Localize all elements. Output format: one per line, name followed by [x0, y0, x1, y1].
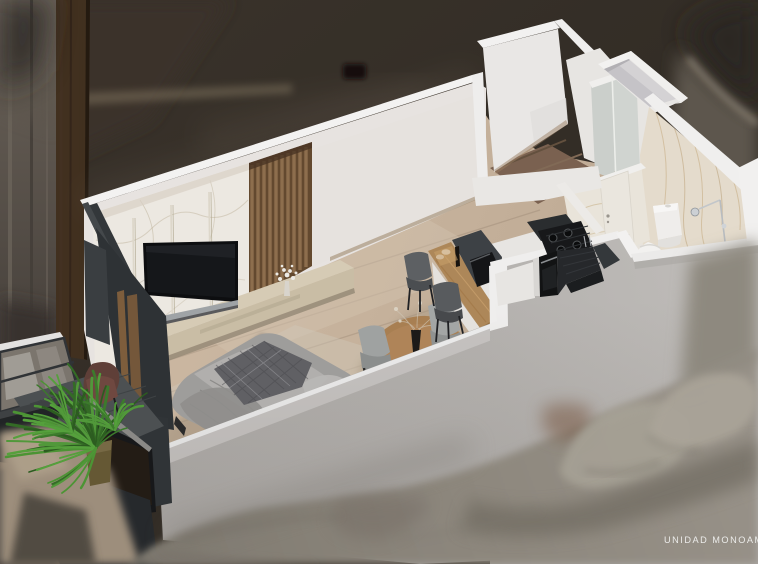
svg-text:UNIDAD MONOAMBIENTE: UNIDAD MONOAMBIENTE	[664, 535, 758, 545]
